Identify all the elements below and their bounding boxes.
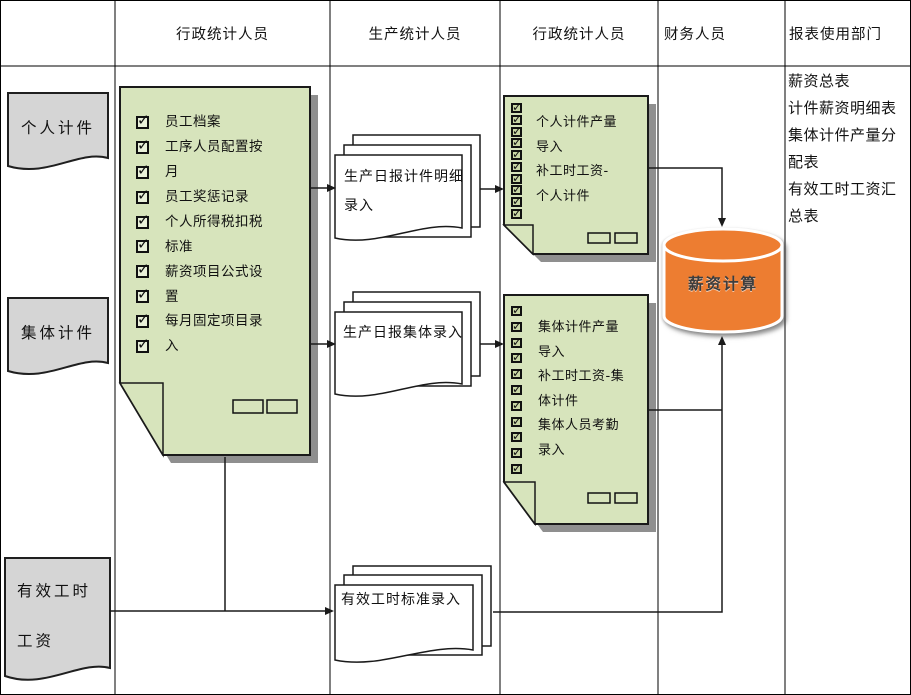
swimlane-flowchart: 行政统计人员 生产统计人员 行政统计人员 财务人员 报表使用部门 个人计件 集体… [0,0,911,695]
production-piecework-daily-doc: 生产日报计件明细 录入 [344,163,464,221]
checkbox-checked-icon [511,322,522,332]
checkbox-checked-icon [136,290,149,303]
effective-hours-standard-doc: 有效工时标准录入 [341,589,461,609]
checkbox-checked-icon [136,116,149,129]
lane-header-admin-statistician-2: 行政统计人员 [500,0,658,66]
page-placeholder-icon [588,493,610,503]
effective-hours-wage-label: 有效工时 工资 [17,566,91,666]
list-item: 标准 [136,234,304,259]
page-placeholder-icon [233,400,263,413]
effective-hours-standard-doc-shape [335,566,491,662]
lane-header-blank [0,0,115,66]
lane-header-admin-statistician-1: 行政统计人员 [115,0,330,66]
checkbox-checked-icon [511,448,522,458]
report-item: 薪资总表 [788,68,902,95]
page-placeholder-icon [588,233,610,243]
collective-import-box: 集体计件产量 导入 补工时工资-集 体计件 集体人员考勤 录入 [538,316,624,463]
checkbox-checked-icon [136,141,149,154]
page-placeholder-icon [615,493,637,503]
checkbox-checked-icon [136,191,149,204]
checkbox-checked-icon [511,385,522,395]
collective-piecework-label: 集体计件 [8,298,108,366]
personal-piecework-label: 个人计件 [8,93,108,161]
list-item: 薪资项目公式设 [136,259,304,284]
checkbox-checked-icon [511,432,522,442]
reports-list: 薪资总表 计件薪资明细表 集体计件产量分配表 有效工时工资汇总表 [788,68,902,230]
list-item: 员工奖惩记录 [136,185,304,210]
checkbox-checked-icon [511,369,522,379]
list-item: 入 [136,334,304,359]
list-item: 置 [136,284,304,309]
list-item: 月 [136,160,304,185]
collective-daily-doc-shape [335,292,480,396]
list-item: 个人所得税扣税 [136,210,304,235]
checkbox-checked-icon [136,216,149,229]
hr-master-data-box: 员工档案 工序人员配置按 月 员工奖惩记录 个人所得税扣税 标准 薪资项目公式设… [136,110,304,359]
page-placeholder-icon [615,233,637,243]
report-item: 集体计件产量分配表 [788,122,902,176]
checkbox-checked-icon [136,315,149,328]
lane-header-report-users: 报表使用部门 [789,0,911,66]
checkbox-checked-icon [136,265,149,278]
checkbox-checked-icon [136,240,149,253]
checkbox-checked-icon [511,401,522,411]
salary-calc-database-label: 薪资计算 [664,269,782,297]
collective-daily-doc: 生产日报集体录入 [343,322,463,342]
lane-header-production-statistician: 生产统计人员 [330,0,500,66]
list-item: 工序人员配置按 [136,135,304,160]
checkbox-checked-icon [136,340,149,353]
lane-header-finance-staff: 财务人员 [664,0,785,66]
checkbox-checked-icon [511,306,522,316]
checkbox-checked-icon [511,338,522,348]
checkbox-checked-icon [511,353,522,363]
list-item: 员工档案 [136,110,304,135]
personal-import-box: 个人计件产量 导入 补工时工资- 个人计件 [536,111,617,209]
page-placeholder-icon [267,400,297,413]
list-item: 每月固定项目录 [136,309,304,334]
checkbox-checked-icon [136,166,149,179]
report-item: 有效工时工资汇总表 [788,176,902,230]
report-item: 计件薪资明细表 [788,95,902,122]
checkbox-checked-icon [511,417,522,427]
checkbox-checked-icon [511,464,522,474]
checkbox-checked-icon [511,209,522,219]
